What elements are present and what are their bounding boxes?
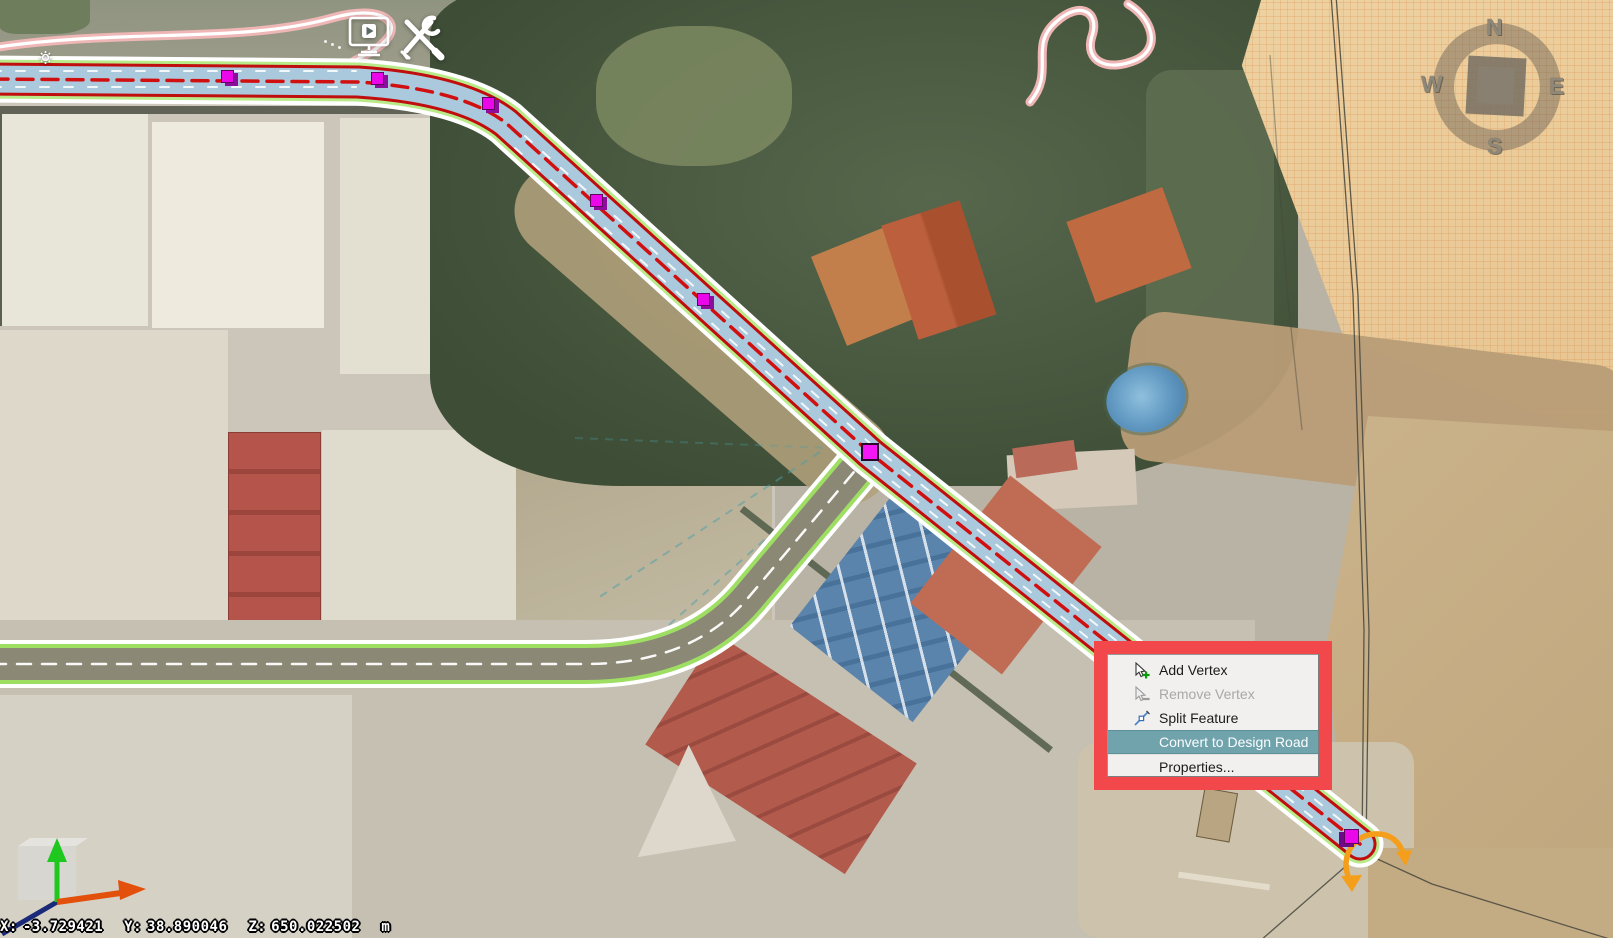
coordinate-readout: X:-3.729421 Y:38.890046 Z:650.022502 m (0, 919, 395, 935)
menu-item-remove-vertex: Remove Vertex (1108, 682, 1318, 706)
menu-item-add-vertex[interactable]: Add Vertex (1108, 658, 1318, 682)
tools-icon (394, 10, 446, 62)
compass-south-label: S (1487, 133, 1502, 160)
menu-item-label: Add Vertex (1159, 662, 1228, 678)
x-value: -3.729421 (23, 919, 103, 935)
menu-item-label: Remove Vertex (1159, 686, 1255, 702)
remove-vertex-icon (1133, 686, 1151, 704)
monitor-play-icon (346, 15, 392, 57)
context-menu: Add Vertex Remove Vertex Split Feature C… (1107, 654, 1319, 777)
settings-button[interactable] (38, 50, 53, 70)
vertex-marker[interactable] (697, 293, 710, 306)
vertex-marker-selected[interactable] (861, 443, 879, 461)
menu-item-split-feature[interactable]: Split Feature (1108, 706, 1318, 730)
compass-west-label: W (1421, 71, 1443, 98)
compass-east-label: E (1549, 73, 1564, 100)
vertex-marker[interactable] (371, 72, 384, 85)
vertex-marker-endpoint[interactable] (1344, 829, 1359, 844)
x-label: X: (0, 919, 18, 935)
compass-cube (1466, 56, 1527, 117)
add-vertex-icon (1133, 662, 1151, 680)
menu-item-label: Split Feature (1159, 710, 1238, 726)
annotation-highlight-box: Add Vertex Remove Vertex Split Feature C… (1094, 641, 1332, 790)
application-window: I (0, 0, 1613, 938)
menu-item-label: Properties... (1159, 759, 1234, 775)
compass-north-label: N (1486, 14, 1503, 41)
y-value: 38.890046 (147, 919, 227, 935)
menu-item-properties[interactable]: Properties... (1108, 754, 1318, 778)
tools-button[interactable] (394, 10, 446, 67)
unit-label: m (381, 919, 390, 935)
vertex-marker[interactable] (590, 194, 603, 207)
toolbar-dots (324, 40, 327, 43)
map-linework (0, 0, 1613, 938)
menu-item-convert-to-design-road[interactable]: Convert to Design Road (1108, 730, 1318, 754)
vertex-marker[interactable] (221, 70, 234, 83)
z-value: 650.022502 (271, 919, 360, 935)
y-label: Y: (124, 919, 142, 935)
map-viewport[interactable] (0, 0, 1613, 938)
menu-item-label: Convert to Design Road (1159, 734, 1308, 750)
split-feature-icon (1133, 710, 1151, 728)
z-label: Z: (248, 919, 266, 935)
presentation-button[interactable] (346, 15, 392, 62)
secondary-road[interactable] (0, 460, 864, 664)
gear-icon (38, 50, 53, 65)
vertex-marker[interactable] (482, 97, 495, 110)
